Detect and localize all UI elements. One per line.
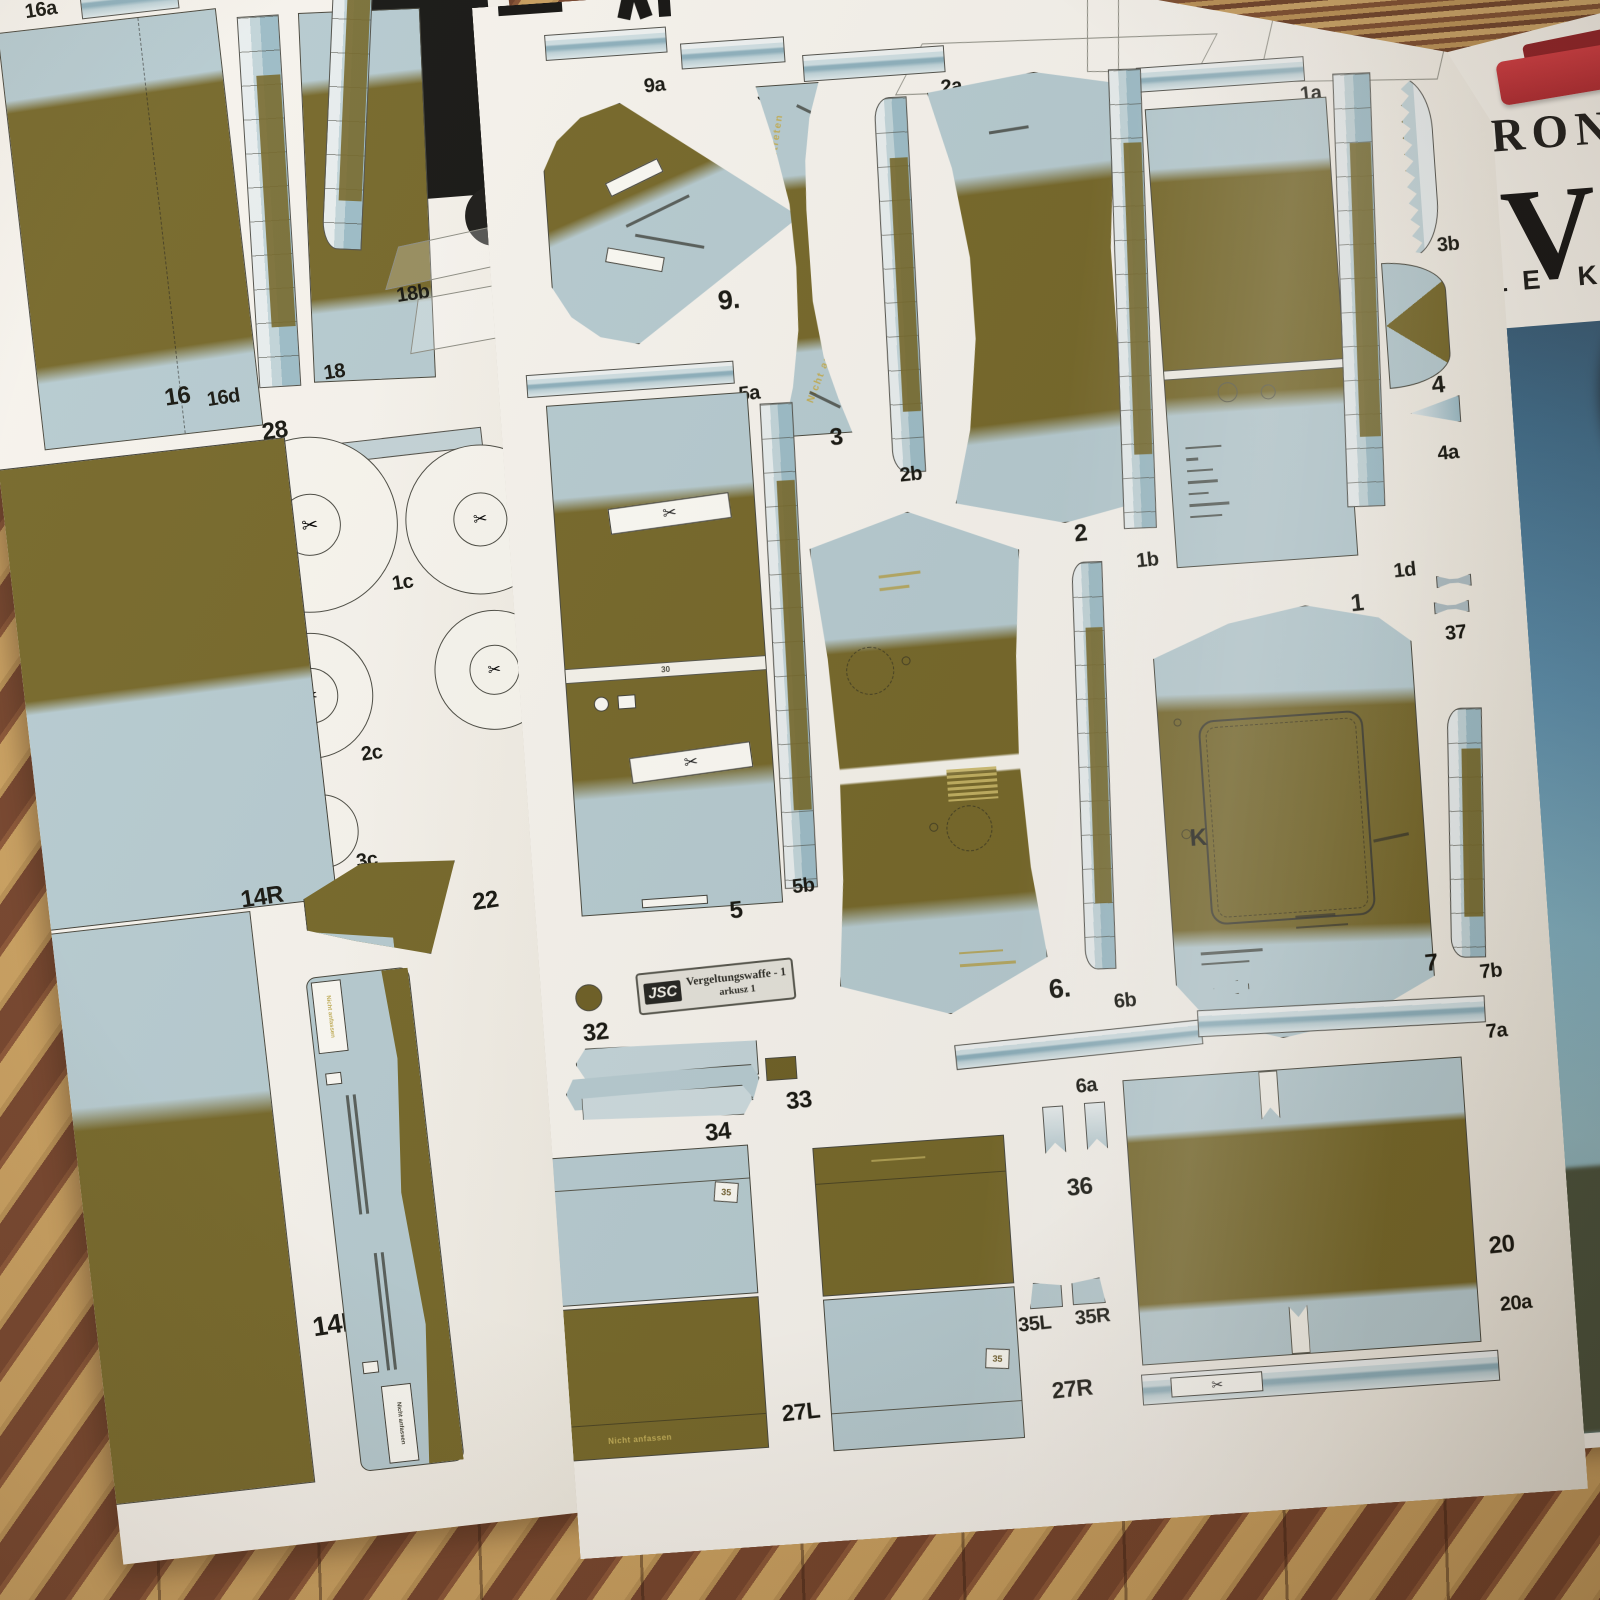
part-label: 4 bbox=[1430, 373, 1445, 398]
scissors-icon: ✂ bbox=[1211, 1376, 1224, 1394]
banner-tab bbox=[1258, 1070, 1280, 1119]
part-label: 35R bbox=[1074, 1305, 1111, 1329]
scissors-icon: ✂ bbox=[472, 509, 488, 530]
part-label: 2c bbox=[360, 742, 384, 765]
part-3a-strip bbox=[680, 36, 786, 69]
scissors-box: ✂ bbox=[608, 492, 732, 535]
part-6a-strip bbox=[954, 1019, 1203, 1070]
scissors-box: ✂ bbox=[629, 741, 753, 784]
cropped-letter-I bbox=[657, 0, 671, 17]
part-label: 3b bbox=[1436, 233, 1460, 255]
part-2b-tab-strip bbox=[874, 96, 927, 473]
part-37-bowtie bbox=[1436, 574, 1472, 588]
part-37-bowtie bbox=[1434, 600, 1470, 614]
scissors-box: ✂ bbox=[1171, 1372, 1264, 1398]
part-label: 14R bbox=[239, 883, 285, 913]
riveted-panel-outline bbox=[1197, 710, 1377, 926]
part-label: 20a bbox=[1499, 1292, 1533, 1315]
cropped-letter-V bbox=[631, 0, 653, 20]
warning-tab: Nicht anfassen bbox=[381, 1383, 420, 1464]
jsc-logo: JSC bbox=[643, 980, 682, 1005]
part-label: 32 bbox=[582, 1020, 610, 1047]
small-marker bbox=[642, 894, 708, 908]
part-label: 1b bbox=[1135, 549, 1159, 571]
part-label: 6. bbox=[1048, 974, 1072, 1003]
scissors-icon: ✂ bbox=[661, 503, 678, 525]
part-4-half-disc bbox=[1381, 259, 1453, 389]
part-35R bbox=[1071, 1277, 1106, 1305]
cropped-letter-V bbox=[617, 0, 636, 20]
part-3-segment: Nicht auftreten Nicht auftreten bbox=[746, 79, 887, 438]
part-14L bbox=[0, 911, 315, 1512]
part-36-pennant bbox=[1042, 1105, 1066, 1153]
part-33-square bbox=[765, 1056, 798, 1081]
tag-35: 35 bbox=[985, 1348, 1010, 1369]
part-label: 4a bbox=[1436, 442, 1459, 464]
part-27R: 35 bbox=[812, 1135, 1025, 1452]
cut-marker-box bbox=[605, 247, 665, 272]
fold-line bbox=[137, 18, 185, 433]
part-5a-strip bbox=[526, 361, 735, 398]
part-label: 7a bbox=[1485, 1020, 1508, 1042]
part-5: 30 ✂ ✂ bbox=[546, 392, 783, 917]
part-6 bbox=[807, 504, 1051, 1021]
kit-title-plate: JSC Vergeltungswaffe - 1 arkusz 1 bbox=[635, 957, 797, 1015]
part-9-cone-fan bbox=[539, 91, 807, 350]
photo-scene: 16a 18a 16 16d 18 18b 28 ✂ 1c ✂ bbox=[0, 0, 1600, 1600]
k-marking: K bbox=[1189, 823, 1208, 852]
scissors-icon: ✂ bbox=[487, 659, 503, 680]
part-label: 3 bbox=[829, 425, 844, 450]
part-label: 27L bbox=[781, 1399, 821, 1426]
part-9a-strip bbox=[544, 27, 668, 61]
part-label: 16d bbox=[206, 385, 242, 410]
part-16 bbox=[0, 8, 263, 450]
part-label: 37 bbox=[1444, 622, 1467, 644]
small-marker bbox=[593, 696, 609, 712]
tag-35: 35 bbox=[713, 1182, 738, 1204]
warning-tab: Nicht anfassen bbox=[311, 979, 349, 1054]
part-34-darts bbox=[563, 1037, 760, 1128]
part-label: 9a bbox=[643, 74, 666, 96]
part-label: 36 bbox=[1066, 1174, 1094, 1201]
small-marker bbox=[325, 1072, 342, 1086]
part-20 bbox=[1122, 1057, 1481, 1366]
part-label: 5b bbox=[791, 875, 815, 897]
part-14R bbox=[0, 437, 337, 938]
part-4a-triangle bbox=[1410, 395, 1462, 425]
nicht-anfassen-text: Nicht anfassen bbox=[608, 1433, 672, 1446]
small-marker bbox=[617, 695, 636, 710]
part-label: 2b bbox=[899, 463, 923, 485]
outlined-box-shape bbox=[1087, 0, 1119, 72]
part-label: 6b bbox=[1113, 990, 1137, 1012]
part-label: 35L bbox=[1017, 1312, 1052, 1335]
strip-30-text: 30 bbox=[661, 664, 671, 674]
part-27L: 35 Nicht anfassen bbox=[542, 1145, 769, 1463]
main-model-sheet: 9a 3a 2a 9. Nicht auftreten Nicht auftre… bbox=[472, 0, 1588, 1559]
part-7b-tab-strip bbox=[1447, 707, 1486, 958]
cut-marker-box bbox=[605, 158, 664, 197]
arrow-mark bbox=[1213, 979, 1250, 995]
scissors-icon: ✂ bbox=[300, 511, 319, 538]
part-label: 1 bbox=[1349, 591, 1364, 616]
nicht-auftreten-text: Nicht auftreten bbox=[761, 113, 785, 207]
part-36-pennant bbox=[1084, 1102, 1108, 1150]
part-label: 1c bbox=[391, 571, 415, 594]
scissors-icon: ✂ bbox=[683, 752, 700, 774]
nicht-anfassen-text: Nicht anfassen bbox=[324, 995, 335, 1038]
part-label: 18 bbox=[322, 361, 346, 384]
part-label: 1d bbox=[1393, 559, 1417, 581]
part-35L bbox=[1028, 1281, 1063, 1309]
part-label: 7 bbox=[1424, 951, 1439, 976]
instrument-panel-print bbox=[946, 766, 998, 801]
part-label: 2 bbox=[1073, 521, 1088, 546]
part-7: K bbox=[1150, 598, 1438, 1045]
small-marker bbox=[362, 1360, 379, 1374]
part-label: 34 bbox=[704, 1119, 732, 1146]
part-label: 22 bbox=[471, 888, 500, 916]
part-label: 5 bbox=[728, 898, 743, 923]
part-label: 9. bbox=[717, 286, 741, 315]
part-label: 7b bbox=[1479, 960, 1503, 982]
part-label: 6a bbox=[1075, 1075, 1098, 1097]
part-label: 16 bbox=[163, 383, 192, 411]
part-launch-rail-piece: Nicht anfassen Nicht anfassen bbox=[305, 966, 465, 1472]
part-label: 27R bbox=[1051, 1375, 1094, 1402]
nicht-anfassen-text: Nicht anfassen bbox=[395, 1402, 406, 1445]
part-6b-tab-strip bbox=[1071, 561, 1116, 970]
part-label: 33 bbox=[785, 1088, 813, 1115]
banner-tab bbox=[1288, 1305, 1310, 1354]
part-3b-serrated-arc bbox=[1375, 74, 1442, 259]
part-32-disc bbox=[574, 983, 603, 1012]
part-label: 20 bbox=[1488, 1232, 1516, 1259]
part-label: 16a bbox=[24, 0, 58, 22]
part-1 bbox=[1145, 97, 1359, 569]
